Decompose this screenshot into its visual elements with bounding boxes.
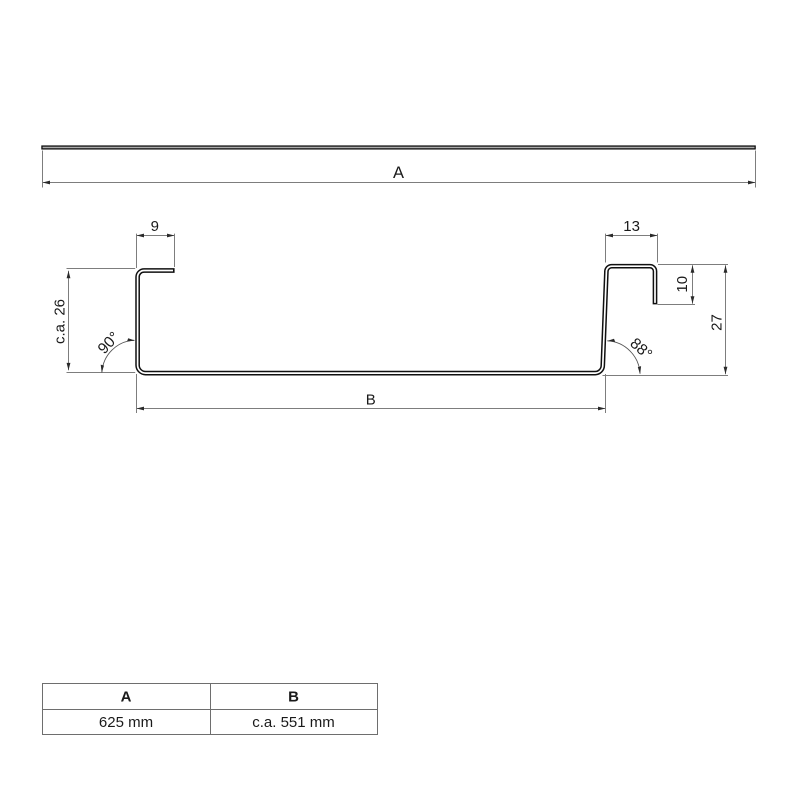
svg-text:88°: 88° <box>626 335 655 363</box>
svg-text:10: 10 <box>674 276 691 293</box>
svg-text:9: 9 <box>151 218 159 235</box>
svg-text:625 mm: 625 mm <box>99 714 153 731</box>
svg-text:B: B <box>366 392 376 409</box>
svg-text:90°: 90° <box>95 329 123 358</box>
svg-text:A: A <box>121 689 132 706</box>
svg-text:27: 27 <box>708 314 725 331</box>
svg-text:c.a. 26: c.a. 26 <box>52 299 69 344</box>
svg-text:c.a. 551 mm: c.a. 551 mm <box>252 714 335 731</box>
svg-text:A: A <box>393 164 404 182</box>
svg-text:B: B <box>288 689 299 706</box>
svg-text:13: 13 <box>623 218 640 235</box>
